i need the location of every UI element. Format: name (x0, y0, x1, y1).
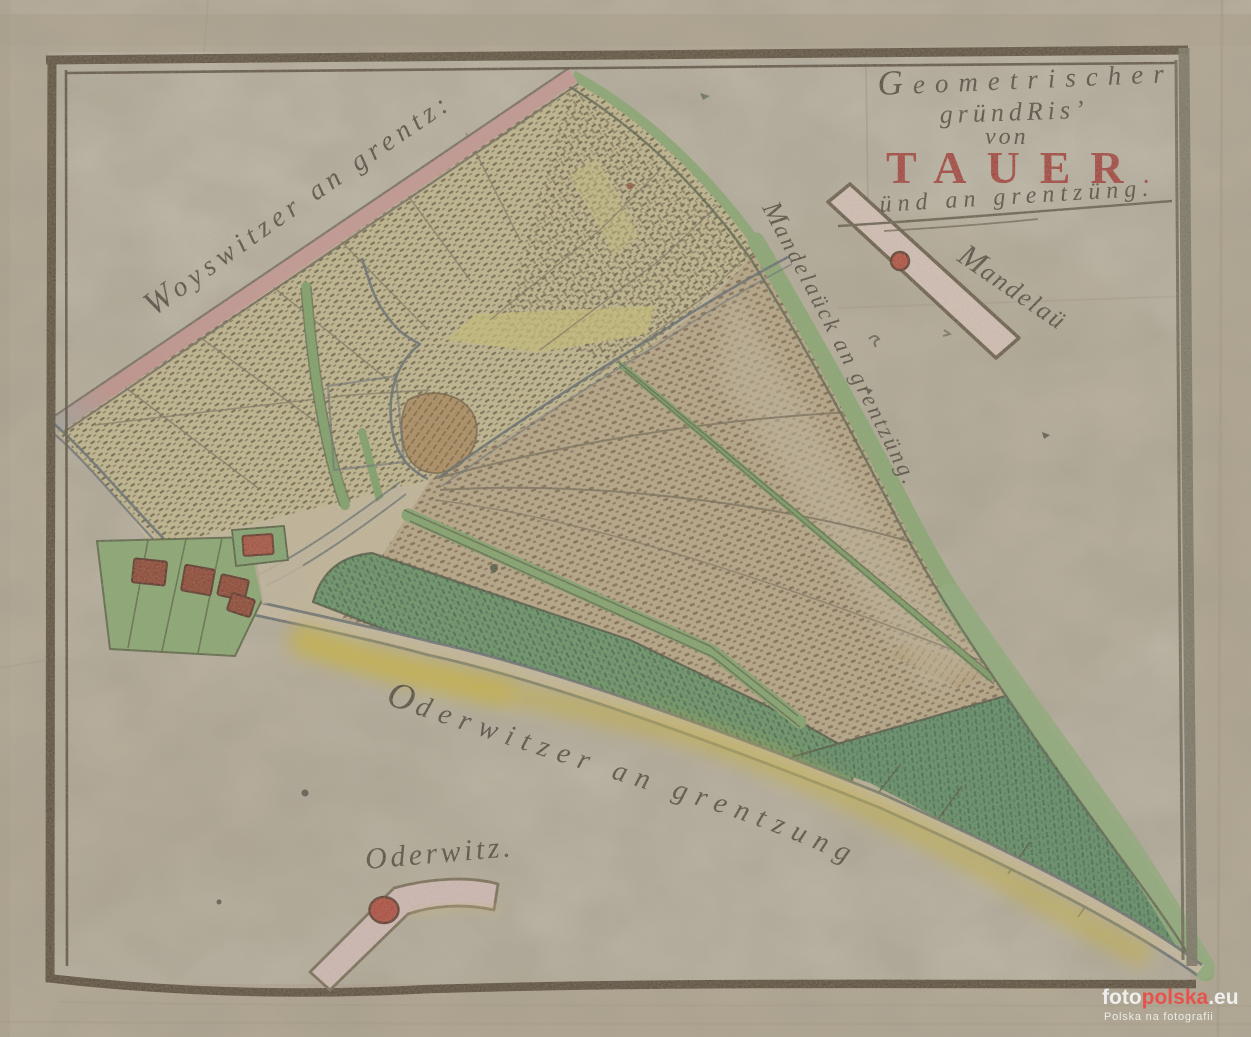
svg-text:fotopolska.eu: fotopolska.eu (1102, 986, 1239, 1009)
svg-text:Polska na fotografii: Polska na fotografii (1104, 1011, 1214, 1023)
